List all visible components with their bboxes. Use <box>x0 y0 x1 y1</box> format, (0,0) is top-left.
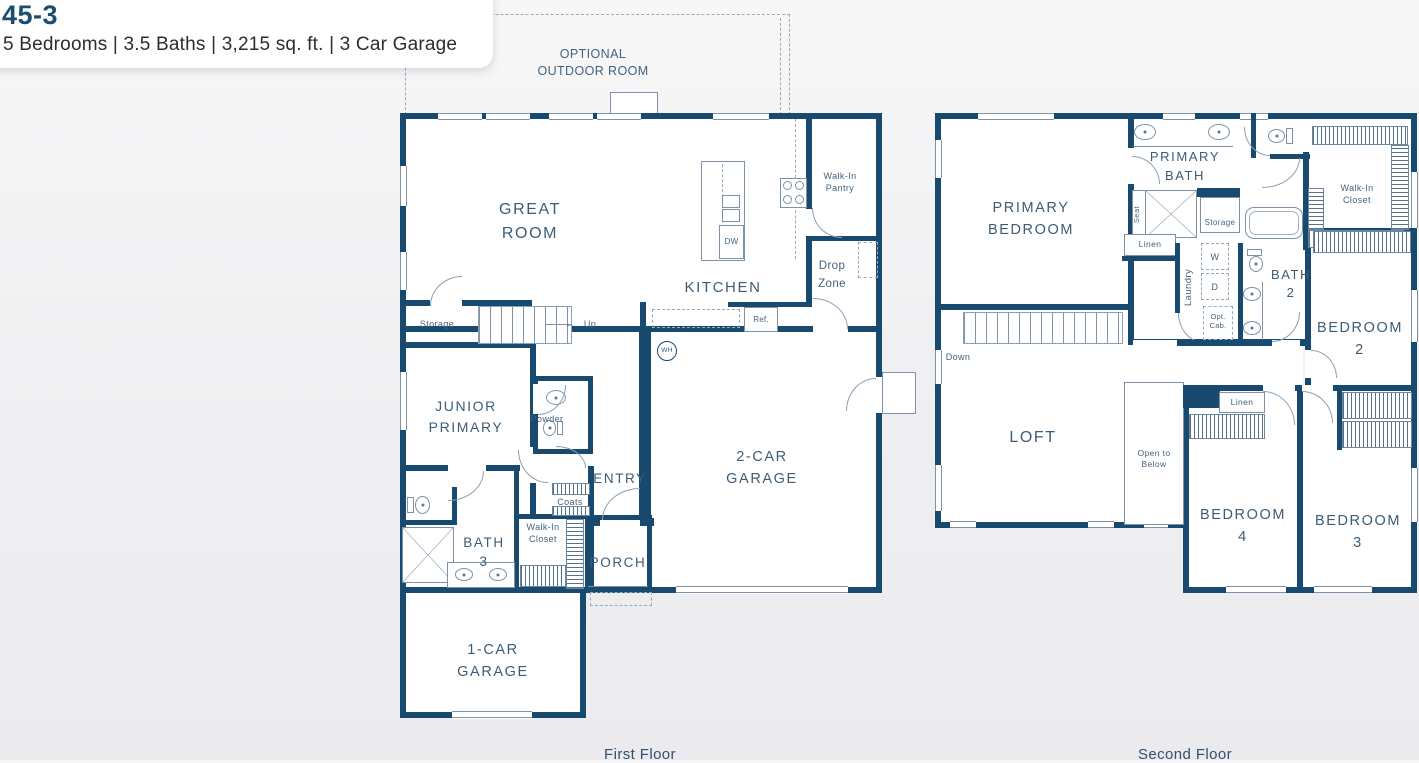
linen-label: Linen <box>1124 239 1176 250</box>
toilet-tank <box>1247 249 1262 256</box>
room-label-bedroom2: BEDROOM 2 <box>1310 318 1410 362</box>
stair-label-down: Down <box>938 351 978 363</box>
vanity-sink <box>1134 124 1156 140</box>
window <box>1411 290 1418 342</box>
bathtub <box>1245 207 1303 239</box>
vanity-sink <box>1243 287 1261 301</box>
vanity-counter <box>1262 282 1263 342</box>
wall <box>935 304 1128 310</box>
wall <box>1175 243 1180 313</box>
room-label-bath2: BATH 2 <box>1266 266 1316 302</box>
window <box>1088 521 1114 528</box>
storage-label: Storage <box>1198 218 1242 229</box>
window <box>1411 468 1418 522</box>
vanity-sink <box>1243 321 1261 335</box>
room-label-primary-bedroom: PRIMARY BEDROOM <box>966 198 1096 242</box>
window <box>935 465 942 511</box>
vanity-sink <box>1208 124 1230 140</box>
toilet <box>1249 256 1263 272</box>
open-to-below-label: Open to Below <box>1126 448 1182 471</box>
door-opening <box>1302 385 1333 391</box>
room-label-laundry: Laundry <box>1183 252 1197 322</box>
linen-label: Linen <box>1219 397 1265 408</box>
wall <box>1177 340 1272 346</box>
bathtub-inner <box>1249 211 1299 235</box>
room-label-bedroom3: BEDROOM 3 <box>1308 511 1408 555</box>
floorplan-canvas: OPTIONAL OUTDOOR ROOM <box>0 0 1419 760</box>
second-floor-caption: Second Floor <box>1110 746 1260 763</box>
window <box>950 521 976 528</box>
wall <box>1122 256 1178 261</box>
closet-hatch <box>1312 126 1408 145</box>
closet-hatch <box>1342 392 1412 419</box>
closet-hatch <box>1313 231 1411 253</box>
opt-cab-label: Opt. Cab. <box>1203 312 1233 331</box>
window <box>1163 113 1195 120</box>
door-opening <box>1263 385 1295 391</box>
wall <box>1197 188 1240 197</box>
window <box>978 113 1054 120</box>
plan-specs: 5 Bedrooms | 3.5 Baths | 3,215 sq. ft. |… <box>3 34 483 60</box>
vanity-counter <box>1133 146 1233 147</box>
toilet-tank <box>1286 128 1293 144</box>
washer-label: W <box>1201 251 1229 263</box>
window <box>1314 586 1372 593</box>
window <box>1226 586 1286 593</box>
room-label-loft: LOFT <box>998 426 1068 450</box>
window <box>1411 172 1418 228</box>
seat-label: Seat <box>1132 192 1146 236</box>
room-label-walkin-closet2: Walk-In Closet <box>1328 182 1386 206</box>
dryer-label: D <box>1201 281 1229 293</box>
shower <box>1145 190 1197 238</box>
toilet <box>1268 129 1285 143</box>
window <box>935 140 942 178</box>
plan-number: 45-3 <box>2 0 202 32</box>
closet-hatch <box>1391 145 1409 230</box>
staircase-down <box>963 312 1123 344</box>
room-label-bedroom4: BEDROOM 4 <box>1193 505 1293 549</box>
closet-hatch <box>1308 188 1324 230</box>
closet-hatch <box>1189 414 1265 439</box>
second-floor-plan: Down PRIMARY BATH Seat Storage Walk-In C… <box>0 0 1419 760</box>
wall-chase <box>1183 385 1220 408</box>
closet-hatch <box>1342 421 1412 448</box>
